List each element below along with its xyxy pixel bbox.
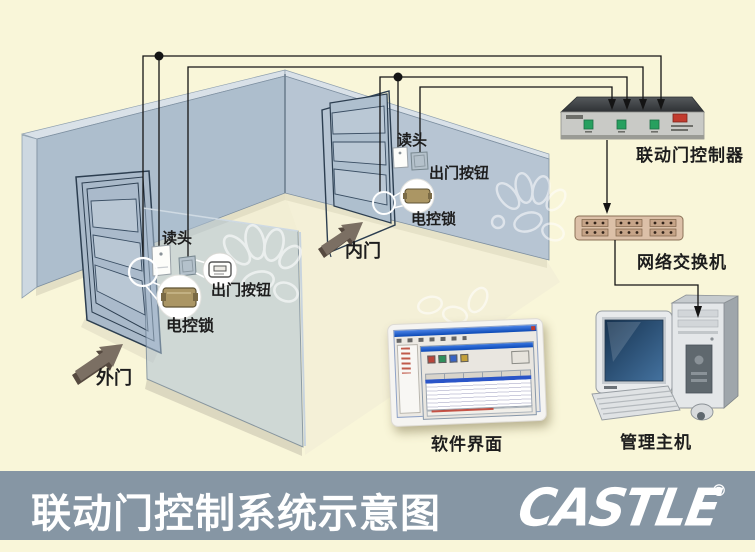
- electric-lock-icon: [163, 288, 196, 307]
- mouse: [691, 404, 713, 420]
- toolbar-icon: [438, 355, 446, 363]
- network-switch-device: [575, 216, 683, 240]
- inner-reader-label: 读头: [397, 129, 427, 150]
- outer-door-label: 外门: [96, 364, 132, 390]
- menu-bar: [397, 336, 467, 343]
- schematic-canvas: 读头 出门按钮 电控锁 外门 读头 出门按钮 电控锁 内门 联动门控制器 网络交…: [0, 0, 755, 552]
- reader-device: [152, 245, 171, 276]
- junction-dot: [394, 73, 403, 82]
- management-host-computer: [592, 295, 738, 420]
- room-drawing: [0, 0, 755, 552]
- outer-lock-label: 电控锁: [166, 312, 214, 336]
- registered-trademark-icon: ®: [711, 481, 727, 500]
- software-window: [393, 324, 541, 418]
- toolbar-icon: [427, 355, 435, 363]
- tower: [672, 295, 738, 408]
- toolbar-icon: [449, 354, 457, 362]
- exit-button-device: [411, 152, 428, 170]
- controller-device: [561, 97, 704, 139]
- junction-dot: [155, 52, 164, 61]
- brand-logo: CASTLE: [514, 478, 724, 538]
- dialog-button: [511, 350, 530, 364]
- toolbar-icon: [460, 354, 468, 362]
- outer-exit-button-label: 出门按钮: [211, 279, 271, 300]
- inner-lock-label: 电控锁: [411, 208, 456, 229]
- inner-door-label: 内门: [345, 237, 381, 263]
- software-screenshot: [387, 318, 547, 427]
- network-switch-label: 网络交换机: [637, 248, 727, 273]
- host-label: 管理主机: [620, 428, 692, 453]
- inner-exit-button-label: 出门按钮: [429, 162, 489, 183]
- close-icon: [531, 326, 535, 330]
- tree-panel: [397, 344, 421, 414]
- footer-title: 联动门控制系统示意图: [31, 481, 441, 539]
- reader-device: [393, 147, 408, 168]
- software-label: 软件界面: [431, 430, 503, 455]
- controller-label: 联动门控制器: [636, 141, 744, 166]
- outer-reader-label: 读头: [162, 227, 192, 248]
- electric-lock-icon: [405, 189, 430, 203]
- exit-button-device: [179, 256, 196, 276]
